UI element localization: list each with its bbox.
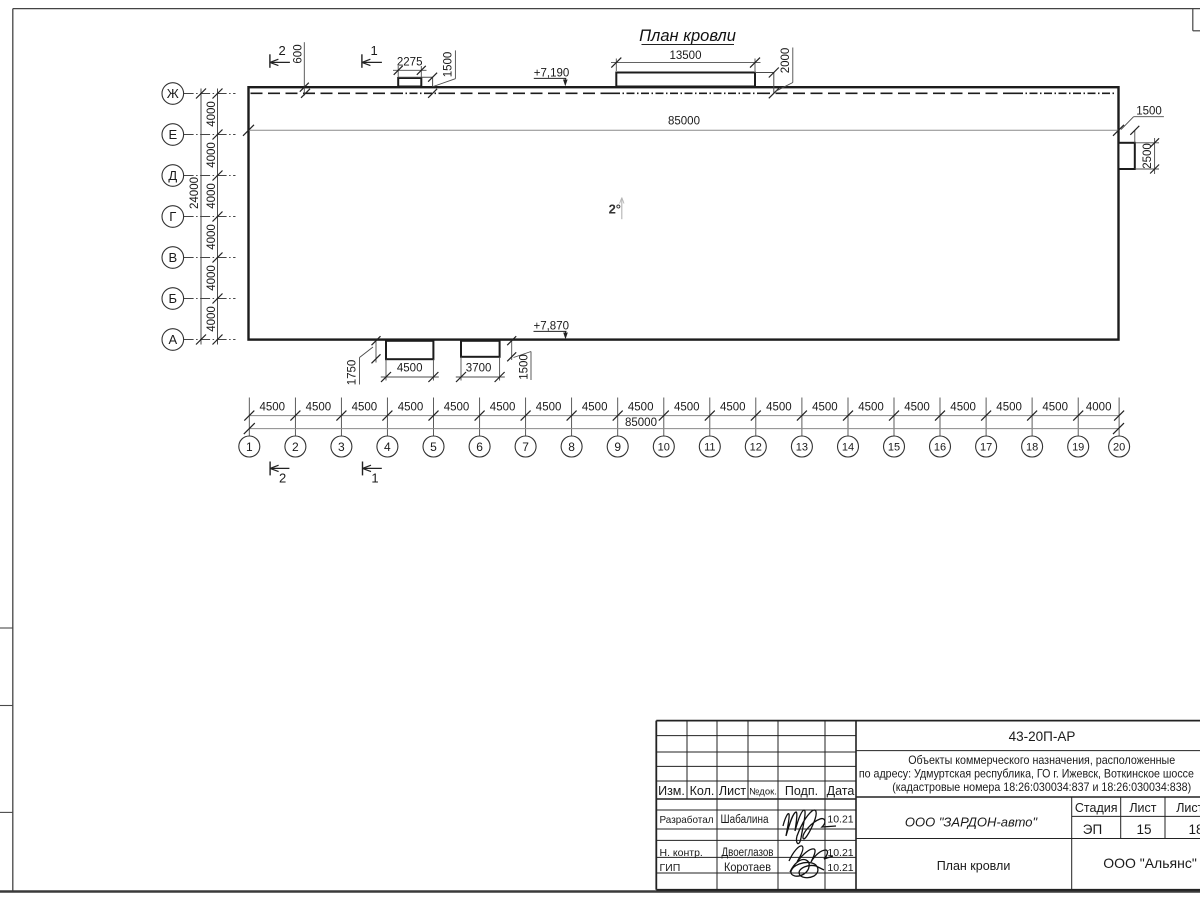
svg-text:по адресу: Удмуртская республи: по адресу: Удмуртская республика, ГО г. …	[859, 767, 1194, 781]
svg-text:3700: 3700	[466, 362, 492, 374]
svg-text:Стадия: Стадия	[1075, 801, 1118, 815]
svg-text:12: 12	[750, 442, 762, 454]
svg-text:План кровли: План кровли	[639, 27, 736, 45]
svg-text:4: 4	[384, 440, 391, 454]
svg-text:4500: 4500	[950, 402, 976, 414]
svg-text:Б: Б	[169, 291, 178, 306]
svg-text:8: 8	[568, 440, 575, 454]
svg-text:2°: 2°	[609, 202, 621, 217]
svg-text:+7,190: +7,190	[534, 67, 570, 79]
svg-text:4500: 4500	[582, 402, 608, 414]
svg-text:43-20П-АР: 43-20П-АР	[1009, 729, 1076, 744]
svg-text:10: 10	[658, 442, 670, 454]
svg-text:Коротаев: Коротаев	[724, 862, 771, 874]
svg-text:1: 1	[246, 440, 253, 454]
svg-text:А: А	[168, 332, 177, 347]
svg-text:2: 2	[292, 440, 299, 454]
svg-text:14: 14	[842, 442, 854, 454]
svg-text:4500: 4500	[398, 402, 424, 414]
svg-text:(кадастровые номера 18:26:0300: (кадастровые номера 18:26:030034:837 и 1…	[892, 780, 1191, 794]
svg-text:1500: 1500	[519, 354, 531, 380]
svg-text:7: 7	[522, 440, 529, 454]
svg-text:4500: 4500	[444, 402, 470, 414]
svg-text:2: 2	[278, 43, 285, 58]
svg-text:9: 9	[614, 440, 621, 454]
svg-text:4500: 4500	[858, 402, 884, 414]
svg-text:10.21: 10.21	[827, 862, 853, 874]
svg-text:ООО "Альянс": ООО "Альянс"	[1103, 855, 1197, 871]
svg-text:4500: 4500	[536, 402, 562, 414]
svg-text:Дата: Дата	[827, 784, 855, 798]
svg-text:Лист: Лист	[1129, 801, 1156, 815]
svg-text:Н. контр.: Н. контр.	[660, 847, 703, 859]
svg-text:4500: 4500	[674, 402, 700, 414]
svg-text:4000: 4000	[1086, 402, 1112, 414]
svg-text:ГИП: ГИП	[660, 862, 681, 874]
svg-text:15: 15	[888, 442, 900, 454]
svg-text:16: 16	[934, 442, 946, 454]
svg-text:4500: 4500	[812, 402, 838, 414]
svg-text:13: 13	[796, 442, 808, 454]
svg-text:1750: 1750	[347, 360, 359, 386]
svg-text:2275: 2275	[397, 56, 423, 68]
svg-text:4500: 4500	[766, 402, 792, 414]
svg-text:18: 18	[1188, 822, 1200, 837]
svg-text:Е: Е	[168, 127, 177, 142]
svg-text:Кол.: Кол.	[690, 784, 715, 798]
svg-text:18: 18	[1026, 442, 1038, 454]
svg-text:4500: 4500	[904, 402, 930, 414]
svg-text:17: 17	[980, 442, 992, 454]
svg-text:6: 6	[476, 440, 483, 454]
svg-text:10.21: 10.21	[827, 814, 853, 826]
svg-text:5: 5	[430, 440, 437, 454]
svg-text:1500: 1500	[1136, 106, 1162, 118]
svg-text:4000: 4000	[206, 224, 218, 250]
svg-text:85000: 85000	[625, 417, 657, 429]
svg-text:Двоеглазов: Двоеглазов	[722, 847, 774, 859]
svg-text:4500: 4500	[260, 402, 286, 414]
svg-text:85000: 85000	[668, 115, 700, 127]
svg-text:13500: 13500	[670, 50, 702, 62]
svg-text:№док.: №док.	[749, 787, 777, 798]
svg-text:+7,870: +7,870	[534, 320, 570, 332]
svg-text:4000: 4000	[206, 183, 218, 209]
svg-text:1: 1	[371, 470, 378, 485]
svg-text:24000: 24000	[189, 177, 201, 209]
svg-text:Д: Д	[168, 168, 177, 183]
svg-text:4000: 4000	[206, 265, 218, 291]
svg-text:Разработал: Разработал	[660, 814, 714, 826]
svg-text:4500: 4500	[720, 402, 746, 414]
svg-text:Подп.: Подп.	[785, 784, 818, 798]
svg-text:Листов: Листов	[1176, 801, 1200, 815]
svg-text:4000: 4000	[206, 306, 218, 332]
svg-text:2: 2	[279, 470, 286, 485]
svg-text:1: 1	[370, 43, 377, 58]
svg-text:2000: 2000	[780, 48, 792, 74]
svg-text:Г: Г	[169, 209, 176, 224]
svg-text:600: 600	[293, 44, 305, 63]
svg-text:4500: 4500	[490, 402, 516, 414]
svg-text:Ж: Ж	[167, 86, 179, 101]
svg-text:19: 19	[1072, 442, 1084, 454]
svg-text:4000: 4000	[206, 142, 218, 168]
svg-text:ООО "ЗАРДОН-авто": ООО "ЗАРДОН-авто"	[905, 815, 1039, 830]
svg-text:4500: 4500	[628, 402, 654, 414]
svg-text:20: 20	[1113, 442, 1125, 454]
svg-text:1500: 1500	[443, 52, 455, 78]
svg-text:4500: 4500	[397, 362, 423, 374]
svg-text:15: 15	[1136, 822, 1151, 837]
svg-text:ЭП: ЭП	[1083, 822, 1102, 837]
svg-text:План кровли: План кровли	[937, 859, 1011, 873]
svg-text:11: 11	[704, 442, 715, 454]
svg-text:3: 3	[338, 440, 345, 454]
svg-text:Шабалина: Шабалина	[721, 814, 770, 826]
svg-text:Изм.: Изм.	[658, 784, 685, 798]
svg-text:Объекты коммерческого назначен: Объекты коммерческого назначения, распол…	[908, 753, 1175, 767]
svg-text:Лист: Лист	[719, 784, 746, 798]
svg-text:2500: 2500	[1142, 143, 1154, 169]
svg-text:4500: 4500	[352, 402, 378, 414]
svg-text:4500: 4500	[996, 402, 1022, 414]
svg-text:4500: 4500	[306, 402, 332, 414]
svg-text:4000: 4000	[206, 101, 218, 127]
svg-text:В: В	[168, 250, 177, 265]
svg-text:4500: 4500	[1042, 402, 1068, 414]
